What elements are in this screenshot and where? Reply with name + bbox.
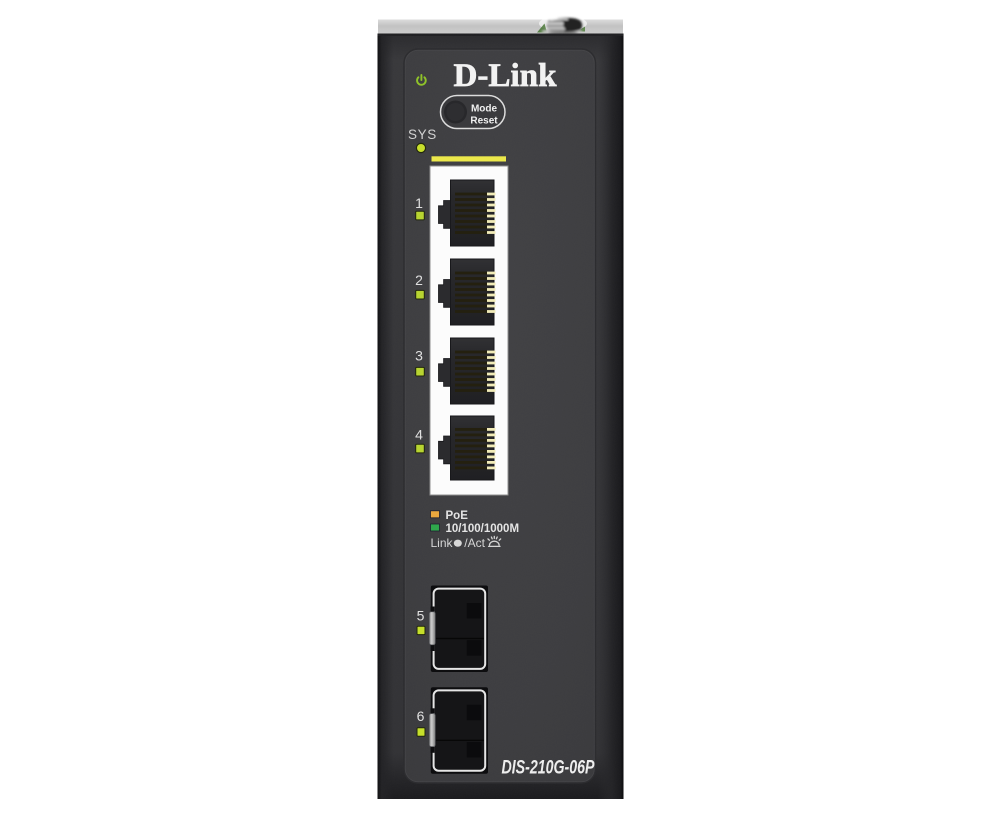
svg-text:SYS: SYS	[408, 127, 437, 142]
svg-text:2: 2	[415, 272, 423, 288]
svg-text:Mode: Mode	[471, 104, 498, 115]
svg-text:Reset: Reset	[470, 116, 498, 127]
svg-text:10/100/1000M: 10/100/1000M	[446, 523, 520, 535]
svg-text:5: 5	[417, 608, 425, 624]
svg-text:3: 3	[415, 348, 423, 364]
svg-text:DIS-210G-06P: DIS-210G-06P	[502, 758, 595, 779]
svg-text:6: 6	[417, 708, 425, 724]
svg-text:/Act: /Act	[464, 536, 485, 550]
svg-text:PoE: PoE	[446, 510, 469, 522]
svg-text:D-Link: D-Link	[454, 58, 558, 94]
svg-text:1: 1	[415, 195, 423, 211]
svg-text:Link: Link	[431, 536, 454, 550]
svg-text:4: 4	[415, 427, 423, 443]
